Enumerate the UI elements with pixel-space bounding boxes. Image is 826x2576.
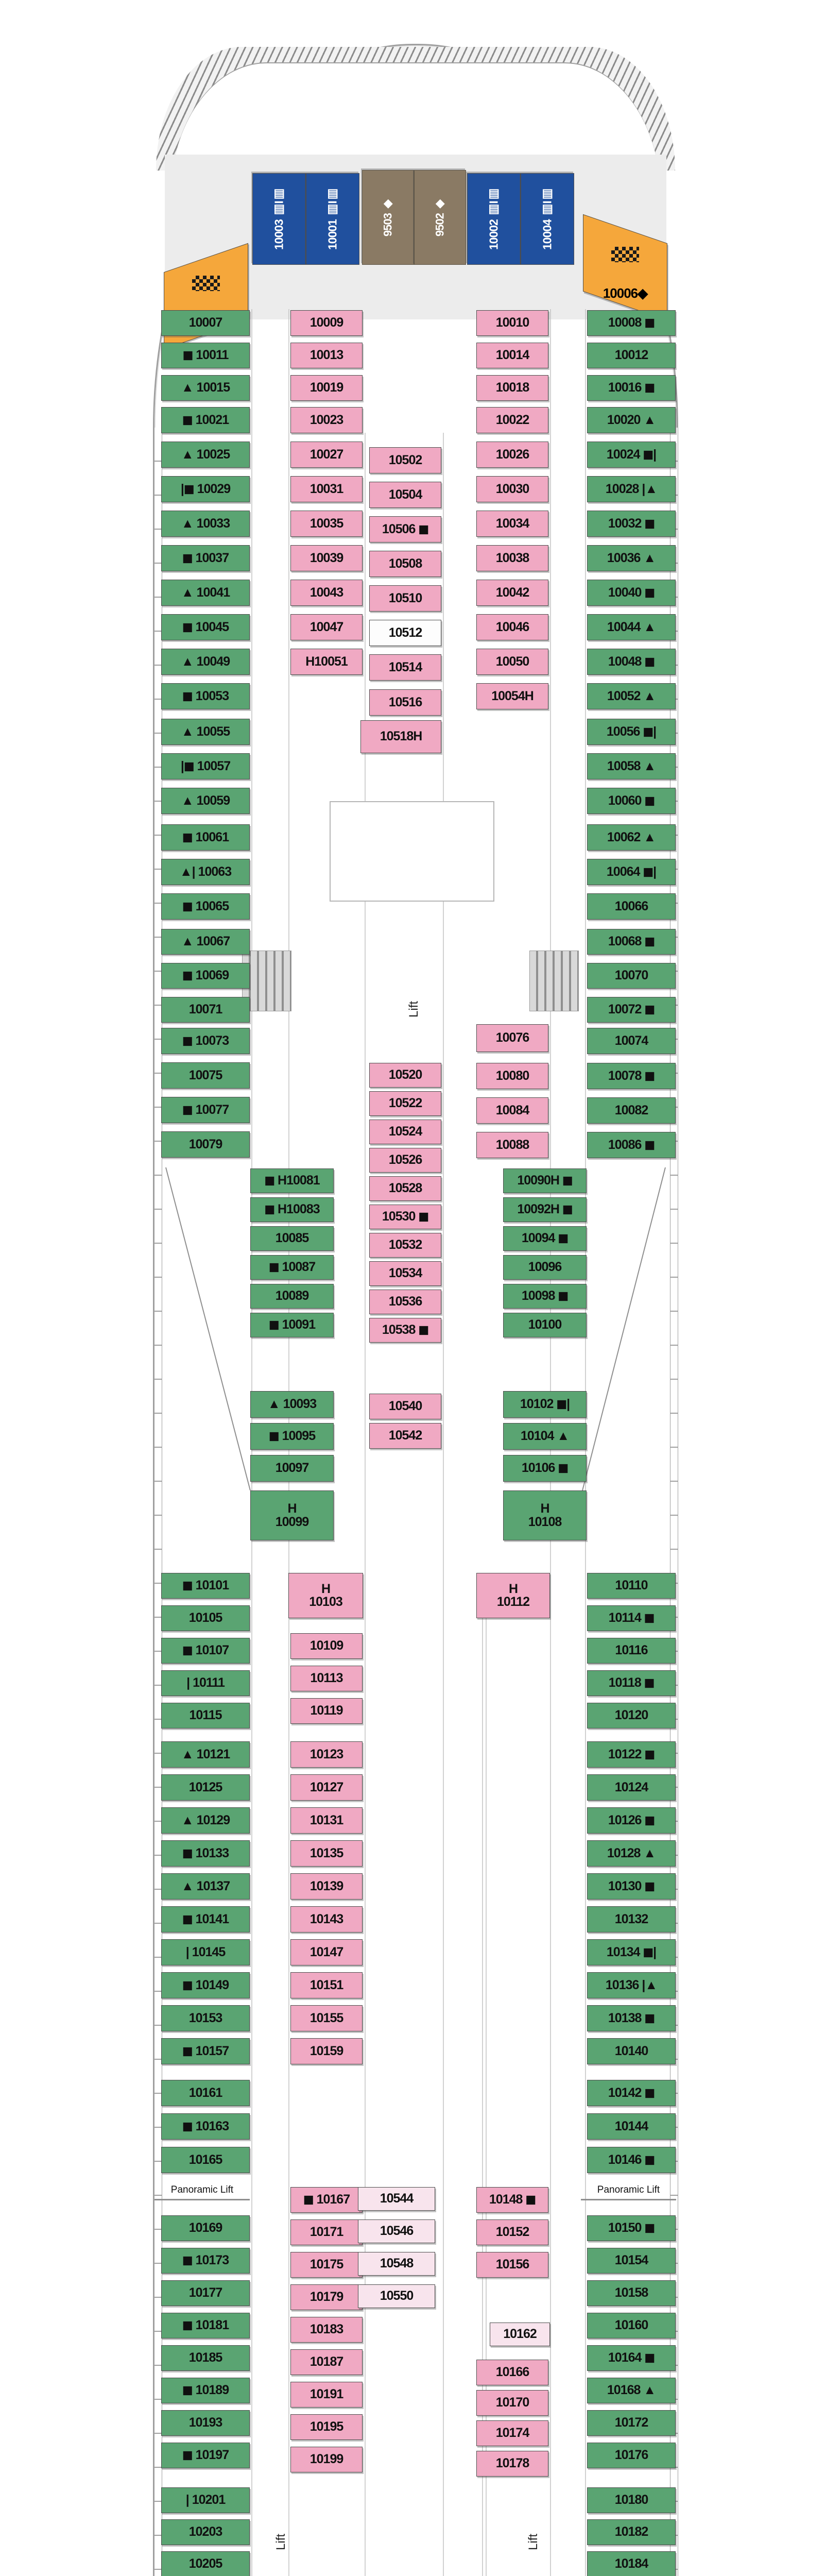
cabin-10528[interactable]: 10528 [369, 1176, 441, 1201]
cabin-10172[interactable]: 10172 [587, 2410, 676, 2436]
cabin-10014[interactable]: 10014 [476, 343, 548, 368]
cabin-10047[interactable]: 10047 [290, 614, 363, 640]
cabin-10167[interactable]: ◼ 10167 [290, 2187, 363, 2213]
cabin-10038[interactable]: 10038 [476, 545, 548, 571]
cabin-10064[interactable]: 10064 ◼| [587, 859, 676, 885]
cabin-10193[interactable]: 10193 [161, 2410, 250, 2436]
cabin-10187[interactable]: 10187 [290, 2349, 363, 2375]
cabin-10016[interactable]: 10016 ◼ [587, 375, 676, 401]
cabin-10059[interactable]: ▲ 10059 [161, 788, 250, 814]
cabin-10177[interactable]: 10177 [161, 2280, 250, 2306]
cabin-10171[interactable]: 10171 [290, 2219, 363, 2245]
forward-stair-lobby [330, 801, 494, 902]
cabin-10125[interactable]: 10125 [161, 1774, 250, 1801]
cabin-10037[interactable]: ◼ 10037 [161, 545, 250, 571]
cabin-10147[interactable]: 10147 [290, 1939, 363, 1965]
cabin-10112[interactable]: H 10112 [476, 1573, 550, 1618]
checker-flag-icon [611, 247, 639, 262]
cabin-10133[interactable]: ◼ 10133 [161, 1840, 250, 1867]
cabin-10542[interactable]: 10542 [369, 1423, 441, 1449]
cabin-10027[interactable]: 10027 [290, 442, 363, 468]
cabin-10030[interactable]: 10030 [476, 476, 548, 502]
cabin-10039[interactable]: 10039 [290, 545, 363, 571]
cabin-10165[interactable]: 10165 [161, 2147, 250, 2173]
cabin-10168[interactable]: 10168 ▲ [587, 2378, 676, 2403]
cabin-10050[interactable]: 10050 [476, 649, 548, 675]
cabin-10141[interactable]: ◼ 10141 [161, 1906, 250, 1933]
cabin-10096[interactable]: 10096 [503, 1255, 587, 1280]
checker-flag-icon [192, 276, 220, 291]
cabin-10098[interactable]: 10098 ◼ [503, 1284, 587, 1309]
cabin-10205[interactable]: 10205 [161, 2551, 250, 2576]
cabin-10013[interactable]: 10013 [290, 343, 363, 368]
cabin-H10051[interactable]: H10051 [290, 649, 363, 675]
cabin-10189[interactable]: ◼ 10189 [161, 2378, 250, 2403]
cabin-10508[interactable]: 10508 [369, 551, 441, 577]
cabin-10151[interactable]: 10151 [290, 1972, 363, 1998]
cabin-10063[interactable]: ▲| 10063 [161, 859, 250, 885]
cabin-10090H[interactable]: 10090H ◼ [503, 1168, 587, 1193]
cabin-10502[interactable]: 10502 [369, 447, 441, 473]
cabin-10080[interactable]: 10080 [476, 1063, 548, 1089]
cabin-10023[interactable]: 10023 [290, 407, 363, 433]
cabin-10035[interactable]: 10035 [290, 511, 363, 537]
cabin-10071[interactable]: 10071 [161, 997, 250, 1023]
cabin-10053[interactable]: ◼ 10053 [161, 683, 250, 709]
cabin-10506[interactable]: 10506 ◼ [369, 516, 441, 543]
cabin-10093[interactable]: ▲ 10093 [250, 1391, 334, 1418]
cabin-10548[interactable]: 10548 [358, 2252, 435, 2276]
cabin-10094[interactable]: 10094 ◼ [503, 1226, 587, 1251]
cabin-10006[interactable]: 10006◆ [583, 214, 667, 320]
cabin-10056[interactable]: 10056 ◼| [587, 719, 676, 745]
cabin-10131[interactable]: 10131 [290, 1807, 363, 1834]
cabin-10195[interactable]: 10195 [290, 2414, 363, 2440]
cabin-10046[interactable]: 10046 [476, 614, 548, 640]
cabin-10142[interactable]: 10142 ◼ [587, 2080, 676, 2106]
cabin-10011[interactable]: ◼ 10011 [161, 343, 250, 368]
cabin-10066[interactable]: 10066 [587, 893, 676, 920]
cabin-10123[interactable]: 10123 [290, 1741, 363, 1768]
cabin-10155[interactable]: 10155 [290, 2005, 363, 2031]
cabin-10045[interactable]: ◼ 10045 [161, 614, 250, 640]
cabin-10113[interactable]: 10113 [290, 1666, 363, 1691]
cabin-10130[interactable]: 10130 ◼ [587, 1873, 676, 1900]
cabin-10520[interactable]: 10520 [369, 1063, 441, 1088]
cabin-10173[interactable]: ◼ 10173 [161, 2248, 250, 2274]
cabin-10170[interactable]: 10170 [476, 2390, 548, 2416]
cabin-10054H[interactable]: 10054H [476, 683, 548, 709]
cabin-10145[interactable]: | 10145 [161, 1939, 250, 1965]
cabin-10197[interactable]: ◼ 10197 [161, 2443, 250, 2468]
cabin-10144[interactable]: 10144 [587, 2113, 676, 2140]
cabin-10087[interactable]: ◼ 10087 [250, 1255, 334, 1280]
cabin-10118[interactable]: 10118 ◼ [587, 1670, 676, 1696]
cabin-10044[interactable]: 10044 ▲ [587, 614, 676, 640]
cabin-10003[interactable]: 10003 ▤I▤ [252, 173, 306, 265]
cabin-10019[interactable]: 10019 [290, 375, 363, 401]
cabin-10124[interactable]: 10124 [587, 1774, 676, 1801]
cabin-10538[interactable]: 10538 ◼ [369, 1318, 441, 1343]
cabin-10022[interactable]: 10022 [476, 407, 548, 433]
deck-plan-page: ◆10005 10006◆ Lift Panoramic Lift Panora… [0, 0, 826, 2576]
cabin-10132[interactable]: 10132 [587, 1906, 676, 1933]
cabin-10089[interactable]: 10089 [250, 1284, 334, 1309]
cabin-10049[interactable]: ▲ 10049 [161, 649, 250, 675]
cabin-10530[interactable]: 10530 ◼ [369, 1205, 441, 1229]
cabin-10137[interactable]: ▲ 10137 [161, 1873, 250, 1900]
cabin-10138[interactable]: 10138 ◼ [587, 2005, 676, 2031]
cabin-H10081[interactable]: ◼ H10081 [250, 1168, 334, 1193]
cabin-10107[interactable]: ◼ 10107 [161, 1638, 250, 1664]
cabin-10095[interactable]: ◼ 10095 [250, 1423, 334, 1450]
cabin-H10083[interactable]: ◼ H10083 [250, 1197, 334, 1222]
cabin-10072[interactable]: 10072 ◼ [587, 997, 676, 1023]
cabin-10048[interactable]: 10048 ◼ [587, 649, 676, 675]
cabin-10184[interactable]: 10184 [587, 2551, 676, 2576]
cabin-10085[interactable]: 10085 [250, 1226, 334, 1251]
cabin-10191[interactable]: 10191 [290, 2382, 363, 2408]
cabin-10122[interactable]: 10122 ◼ [587, 1741, 676, 1768]
cabin-10065[interactable]: ◼ 10065 [161, 893, 250, 920]
cabin-10540[interactable]: 10540 [369, 1394, 441, 1419]
cabin-10534[interactable]: 10534 [369, 1261, 441, 1286]
cabin-10086[interactable]: 10086 ◼ [587, 1132, 676, 1158]
cabin-10143[interactable]: 10143 [290, 1906, 363, 1933]
cabin-10055[interactable]: ▲ 10055 [161, 719, 250, 745]
cabin-10018[interactable]: 10018 [476, 375, 548, 401]
cabin-10033[interactable]: ▲ 10033 [161, 511, 250, 537]
cabin-10156[interactable]: 10156 [476, 2252, 548, 2278]
cabin-10078[interactable]: 10078 ◼ [587, 1063, 676, 1089]
cabin-10043[interactable]: 10043 [290, 580, 363, 606]
cabin-10179[interactable]: 10179 [290, 2284, 363, 2310]
cabin-10060[interactable]: 10060 ◼ [587, 788, 676, 814]
cabin-10162[interactable]: 10162 [490, 2323, 550, 2346]
cabin-10114[interactable]: 10114 ◼ [587, 1605, 676, 1631]
cabin-10021[interactable]: ◼ 10021 [161, 407, 250, 433]
cabin-10103[interactable]: H 10103 [288, 1573, 363, 1618]
cabin-10067[interactable]: ▲ 10067 [161, 929, 250, 955]
cabin-10176[interactable]: 10176 [587, 2443, 676, 2468]
lift-label-mid2-right: Lift [526, 2501, 541, 2550]
cabin-10115[interactable]: 10115 [161, 1703, 250, 1728]
cabin-10029[interactable]: |◼ 10029 [161, 476, 250, 502]
cabin-10015[interactable]: ▲ 10015 [161, 375, 250, 401]
cabin-10100[interactable]: 10100 [503, 1313, 587, 1337]
cabin-10101[interactable]: ◼ 10101 [161, 1573, 250, 1599]
cabin-10134[interactable]: 10134 ◼| [587, 1939, 676, 1965]
cabin-10532[interactable]: 10532 [369, 1233, 441, 1258]
cabin-10148[interactable]: 10148 ◼ [476, 2187, 548, 2213]
cabin-10041[interactable]: ▲ 10041 [161, 580, 250, 606]
cabin-10524[interactable]: 10524 [369, 1120, 441, 1144]
cabin-10079[interactable]: 10079 [161, 1131, 250, 1158]
cabin-10119[interactable]: 10119 [290, 1698, 363, 1724]
cabin-10001[interactable]: 10001 ▤I▤ [306, 173, 359, 265]
cabin-10069[interactable]: ◼ 10069 [161, 963, 250, 989]
cabin-10002[interactable]: 10002 ▤I▤ [467, 173, 521, 265]
cabin-10135[interactable]: 10135 [290, 1840, 363, 1867]
cabin-10057[interactable]: |◼ 10057 [161, 753, 250, 779]
cabin-10146[interactable]: 10146 ◼ [587, 2147, 676, 2173]
cabin-10110[interactable]: 10110 [587, 1573, 676, 1599]
cabin-label: 10006◆ [583, 285, 667, 301]
cabin-10159[interactable]: 10159 [290, 2038, 363, 2064]
cabin-10150[interactable]: 10150 ◼ [587, 2215, 676, 2241]
cabin-10139[interactable]: 10139 [290, 1873, 363, 1900]
cabin-10116[interactable]: 10116 [587, 1638, 676, 1664]
cabin-10510[interactable]: 10510 [369, 585, 441, 612]
cabin-10199[interactable]: 10199 [290, 2447, 363, 2472]
cabin-10201[interactable]: | 10201 [161, 2487, 250, 2513]
cabin-10020[interactable]: 10020 ▲ [587, 407, 676, 433]
cabin-10120[interactable]: 10120 [587, 1703, 676, 1728]
cabin-10169[interactable]: 10169 [161, 2215, 250, 2241]
cabin-10128[interactable]: 10128 ▲ [587, 1840, 676, 1867]
cabin-10009[interactable]: 10009 [290, 310, 363, 336]
cabin-10149[interactable]: ◼ 10149 [161, 1972, 250, 1998]
cabin-10181[interactable]: ◼ 10181 [161, 2313, 250, 2338]
cabin-10088[interactable]: 10088 [476, 1132, 548, 1158]
cabin-10075[interactable]: 10075 [161, 1062, 250, 1089]
cabin-10073[interactable]: ◼ 10073 [161, 1028, 250, 1054]
cabin-10161[interactable]: 10161 [161, 2080, 250, 2106]
cabin-10160[interactable]: 10160 [587, 2313, 676, 2338]
cabin-10008[interactable]: 10008 ◼ [587, 310, 676, 336]
cabin-10154[interactable]: 10154 [587, 2248, 676, 2274]
cabin-10004[interactable]: 10004 ▤I▤ [521, 173, 574, 265]
cabin-10068[interactable]: 10068 ◼ [587, 929, 676, 955]
cabin-10025[interactable]: ▲ 10025 [161, 442, 250, 468]
cabin-10157[interactable]: ◼ 10157 [161, 2038, 250, 2064]
cabin-10140[interactable]: 10140 [587, 2038, 676, 2064]
cabin-9502[interactable]: 9502 ◆ [414, 170, 466, 265]
cabin-10070[interactable]: 10070 [587, 963, 676, 989]
cabin-10024[interactable]: 10024 ◼| [587, 442, 676, 468]
stairs-mid1-right [529, 951, 579, 1011]
cabin-10550[interactable]: 10550 [358, 2284, 435, 2308]
cabin-10028[interactable]: 10028 |▲ [587, 476, 676, 502]
cabin-10109[interactable]: 10109 [290, 1633, 363, 1659]
cabin-10040[interactable]: 10040 ◼ [587, 580, 676, 606]
cabin-10074[interactable]: 10074 [587, 1028, 676, 1054]
cabin-10127[interactable]: 10127 [290, 1774, 363, 1801]
cabin-10185[interactable]: 10185 [161, 2345, 250, 2371]
cabin-10099[interactable]: H 10099 [250, 1490, 334, 1540]
cabin-10042[interactable]: 10042 [476, 580, 548, 606]
cabin-10526[interactable]: 10526 [369, 1148, 441, 1173]
panoramic-lift-right: Panoramic Lift [581, 2184, 676, 2200]
cabin-10034[interactable]: 10034 [476, 511, 548, 537]
cabin-10031[interactable]: 10031 [290, 476, 363, 502]
cabin-10076[interactable]: 10076 [476, 1024, 548, 1052]
cabin-10105[interactable]: 10105 [161, 1605, 250, 1631]
cabin-10126[interactable]: 10126 ◼ [587, 1807, 676, 1834]
cabin-10077[interactable]: ◼ 10077 [161, 1097, 250, 1123]
cabin-10032[interactable]: 10032 ◼ [587, 511, 676, 537]
cabin-10084[interactable]: 10084 [476, 1097, 548, 1124]
panoramic-lift-left: Panoramic Lift [154, 2184, 250, 2200]
cabin-10108[interactable]: H 10108 [503, 1490, 587, 1540]
cabin-10516[interactable]: 10516 [369, 689, 441, 716]
cabin-10164[interactable]: 10164 ◼ [587, 2345, 676, 2371]
cabin-10546[interactable]: 10546 [358, 2219, 435, 2243]
cabin-10504[interactable]: 10504 [369, 482, 441, 508]
cabin-10512[interactable]: 10512 [369, 620, 441, 646]
cabin-10102[interactable]: 10102 ◼| [503, 1391, 587, 1418]
cabin-10514[interactable]: 10514 [369, 654, 441, 681]
cabin-10163[interactable]: ◼ 10163 [161, 2113, 250, 2140]
cabin-10178[interactable]: 10178 [476, 2451, 548, 2477]
cabin-10158[interactable]: 10158 [587, 2280, 676, 2306]
cabin-10182[interactable]: 10182 [587, 2519, 676, 2545]
cabin-10175[interactable]: 10175 [290, 2252, 363, 2278]
cabin-10136[interactable]: 10136 |▲ [587, 1972, 676, 1998]
cabin-10007[interactable]: 10007 [161, 310, 250, 336]
lift-label-mid1: Lift [407, 956, 421, 1018]
cabin-10174[interactable]: 10174 [476, 2420, 548, 2446]
cabin-10518H[interactable]: 10518H [360, 720, 441, 753]
cabin-10166[interactable]: 10166 [476, 2360, 548, 2385]
cabin-9503[interactable]: 9503 ◆ [362, 170, 414, 265]
cabin-10111[interactable]: | 10111 [161, 1670, 250, 1696]
cabin-10152[interactable]: 10152 [476, 2219, 548, 2245]
cabin-10522[interactable]: 10522 [369, 1091, 441, 1116]
cabin-10036[interactable]: 10036 ▲ [587, 545, 676, 571]
cabin-10203[interactable]: 10203 [161, 2519, 250, 2545]
lift-label-mid2-left: Lift [274, 2501, 288, 2550]
cabin-10129[interactable]: ▲ 10129 [161, 1807, 250, 1834]
cabin-10010[interactable]: 10010 [476, 310, 548, 336]
cabin-10180[interactable]: 10180 [587, 2487, 676, 2513]
cabin-10544[interactable]: 10544 [358, 2187, 435, 2211]
cabin-10106[interactable]: 10106 ◼ [503, 1455, 587, 1482]
cabin-10097[interactable]: 10097 [250, 1455, 334, 1482]
cabin-10061[interactable]: ◼ 10061 [161, 824, 250, 851]
cabin-10183[interactable]: 10183 [290, 2317, 363, 2343]
cabin-10058[interactable]: 10058 ▲ [587, 753, 676, 779]
cabin-10104[interactable]: 10104 ▲ [503, 1423, 587, 1450]
cabin-10153[interactable]: 10153 [161, 2005, 250, 2031]
cabin-10092H[interactable]: 10092H ◼ [503, 1197, 587, 1222]
cabin-10012[interactable]: 10012 [587, 343, 676, 368]
cabin-10052[interactable]: 10052 ▲ [587, 683, 676, 709]
cabin-10091[interactable]: ◼ 10091 [250, 1313, 334, 1337]
cabin-10062[interactable]: 10062 ▲ [587, 824, 676, 851]
cabin-10121[interactable]: ▲ 10121 [161, 1741, 250, 1768]
cabin-10026[interactable]: 10026 [476, 442, 548, 468]
cabin-10536[interactable]: 10536 [369, 1290, 441, 1314]
cabin-10082[interactable]: 10082 [587, 1097, 676, 1124]
